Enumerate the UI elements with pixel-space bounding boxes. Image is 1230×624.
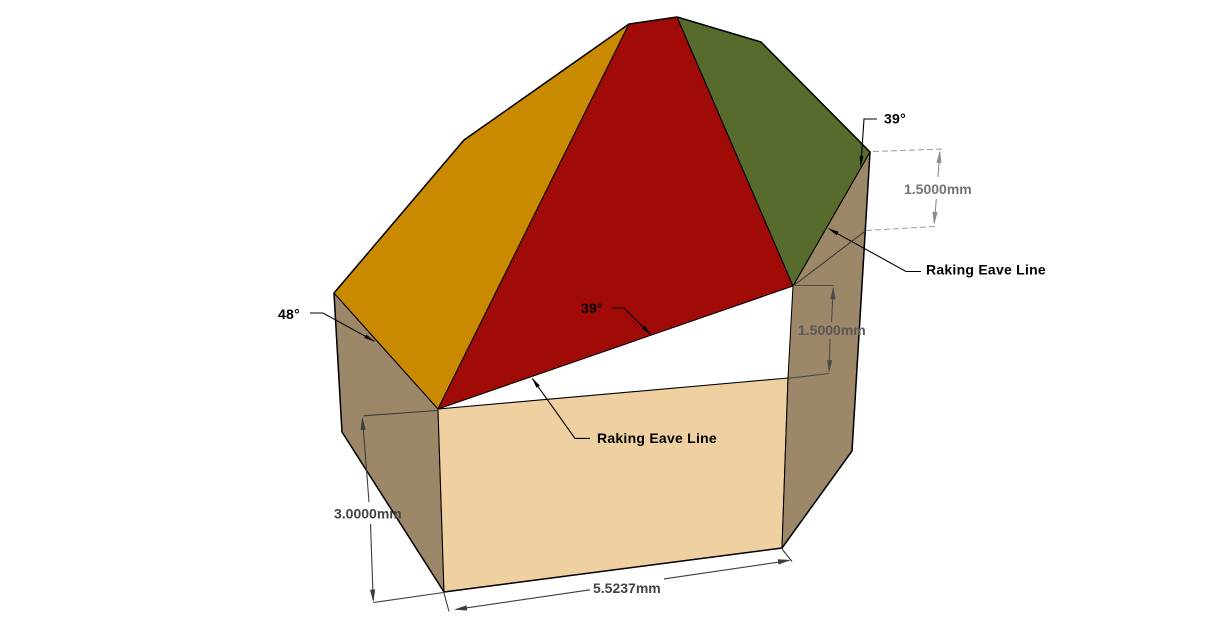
svg-text:5.5237mm: 5.5237mm — [593, 580, 661, 596]
svg-text:Raking Eave Line: Raking Eave Line — [926, 262, 1046, 278]
svg-text:1.5000mm: 1.5000mm — [904, 181, 972, 197]
svg-text:1.5000mm: 1.5000mm — [798, 322, 866, 338]
svg-text:39°: 39° — [884, 111, 906, 127]
svg-text:3.0000mm: 3.0000mm — [334, 506, 402, 522]
svg-text:39°: 39° — [581, 300, 603, 316]
svg-text:48°: 48° — [278, 306, 300, 322]
svg-text:Raking Eave Line: Raking Eave Line — [597, 430, 717, 446]
